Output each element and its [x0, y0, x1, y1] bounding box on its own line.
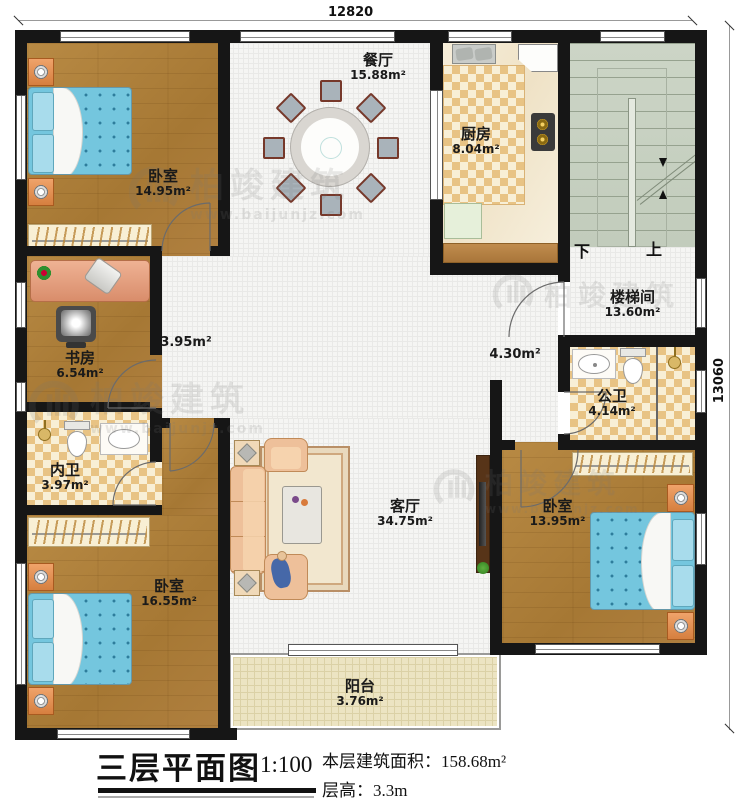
label-hall-west: 3.95m² — [146, 336, 226, 351]
label-kitchen: 厨房 8.04m² — [431, 126, 521, 157]
label-bedroom-br: 卧室 13.95m² — [510, 498, 605, 529]
title-underline-thick — [98, 788, 316, 793]
label-living: 客厅 34.75m² — [355, 498, 455, 529]
label-bath-inner: 内卫 3.97m² — [20, 462, 110, 493]
label-bedroom-bl: 卧室 16.55m² — [124, 578, 214, 609]
door-arc — [113, 462, 156, 505]
scale-label: 1:100 — [260, 752, 312, 778]
door-arc — [162, 203, 210, 251]
label-bath-public: 公卫 4.14m² — [567, 388, 657, 419]
label-study: 书房 6.54m² — [35, 350, 125, 381]
page-title: 三层平面图 — [96, 743, 261, 788]
label-hall-east: 4.30m² — [475, 348, 555, 363]
door-arc — [170, 423, 214, 471]
label-balcony: 阳台 3.76m² — [315, 678, 405, 709]
label-bedroom-tl: 卧室 14.95m² — [118, 168, 208, 199]
door-arc — [509, 282, 564, 337]
floor-plan: 12820 13060 — [0, 0, 750, 812]
title-underline-thin — [98, 796, 314, 798]
building-area-label: 本层建筑面积：158.68m² — [322, 747, 506, 772]
label-stairwell: 楼梯间 13.60m² — [585, 289, 680, 320]
floor-height-label: 层高：3.3m — [322, 776, 407, 801]
label-dining: 餐厅 15.88m² — [333, 52, 423, 83]
